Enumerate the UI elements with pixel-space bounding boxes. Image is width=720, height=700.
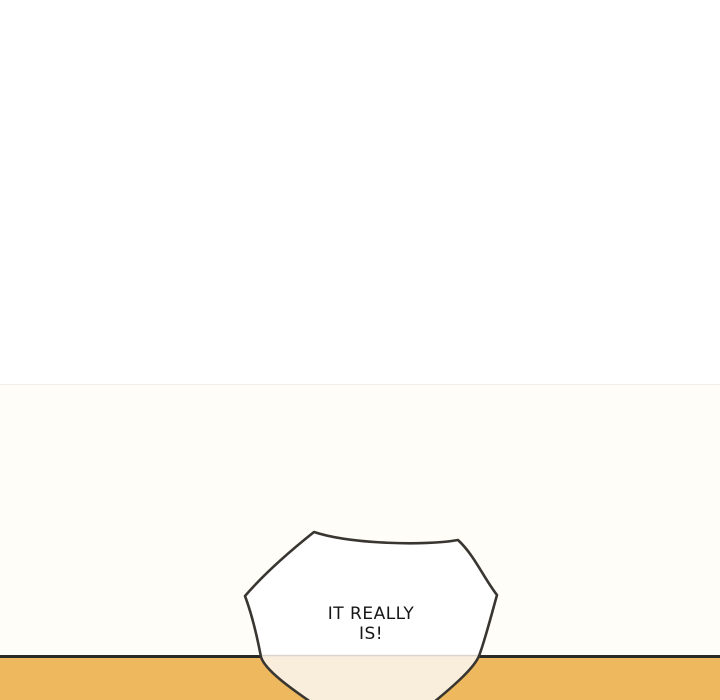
speech-line-2: IS!: [271, 624, 471, 644]
ground-fill: [0, 658, 720, 700]
speech-bubble-text: IT REALLY IS!: [271, 604, 471, 644]
speech-line-1: IT REALLY: [271, 604, 471, 624]
blank-panel-top: [0, 0, 720, 384]
webtoon-strip: IT REALLY IS!: [0, 0, 720, 700]
